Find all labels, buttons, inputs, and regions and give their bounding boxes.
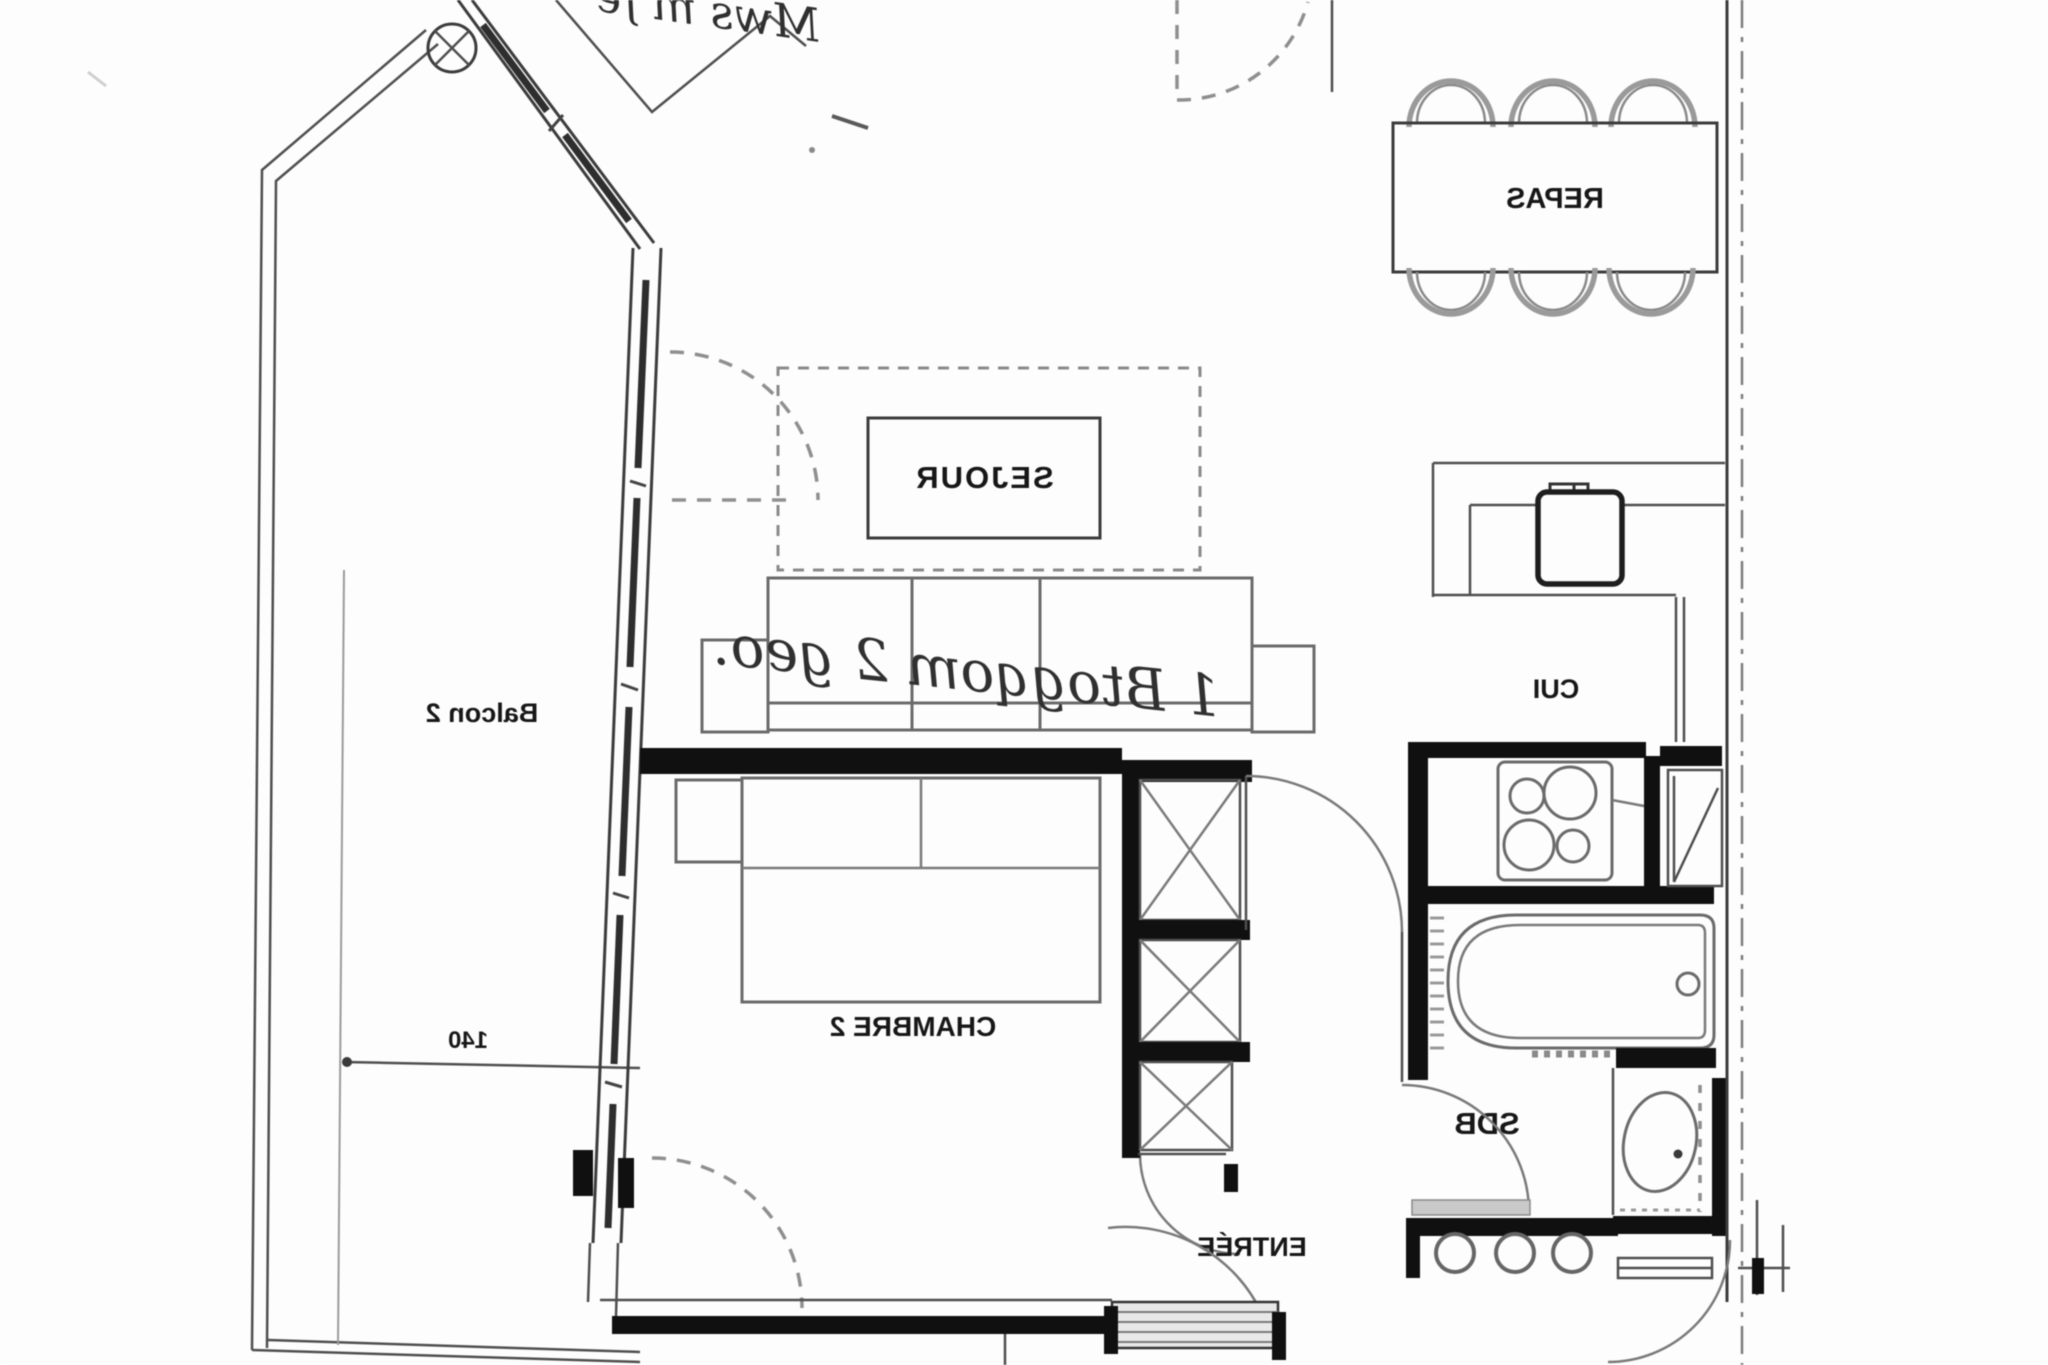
wall-stub [1224, 1164, 1238, 1192]
dimension-140-label: 140 [448, 1027, 488, 1054]
door-jamb [1104, 1306, 1118, 1354]
floorplan-drawing: 140 Balcon 2 [0, 0, 2048, 1365]
dimension-end-dot [342, 1057, 352, 1067]
wall-segment [1428, 886, 1714, 904]
kitchen-sink-symbol [1538, 484, 1622, 584]
door-jamb [1272, 1312, 1286, 1360]
wall-stub [1406, 1236, 1420, 1278]
facade-end-post [618, 1158, 634, 1208]
room-label-sejour: SEJOUR [914, 460, 1053, 495]
room-label-entree: ENTRÉE [1197, 1231, 1307, 1262]
wall-segment [1122, 760, 1252, 782]
facade-glazing-panel [608, 1104, 613, 1228]
wall-stub [1752, 1258, 1764, 1294]
room-label-chambre-2: CHAMBRE 2 [830, 1011, 996, 1042]
wall-segment [1428, 742, 1646, 758]
wall-segment [1122, 762, 1140, 1158]
shelf-symbol [1412, 1200, 1530, 1215]
wall-segment [1128, 920, 1250, 940]
room-label-sdb: SDB [1454, 1106, 1519, 1141]
wall-segment [1613, 1216, 1721, 1234]
room-label-cuisine: CUI [1533, 674, 1580, 704]
room-label-balcon-2: Balcon 2 [426, 698, 539, 728]
wall-segment [1408, 742, 1428, 1080]
interior-wall [640, 748, 1122, 774]
facade-end-post [573, 1150, 593, 1196]
wall-segment [1128, 1042, 1250, 1062]
wall-segment [1616, 1048, 1716, 1068]
window-sill-wall [612, 1316, 1110, 1334]
wall-segment [1660, 746, 1722, 766]
wall-segment [1644, 756, 1660, 902]
floorplan-scan-page: 140 Balcon 2 [0, 0, 2048, 1365]
pen-dot-mark [809, 147, 815, 153]
room-label-repas: REPAS [1506, 183, 1604, 215]
